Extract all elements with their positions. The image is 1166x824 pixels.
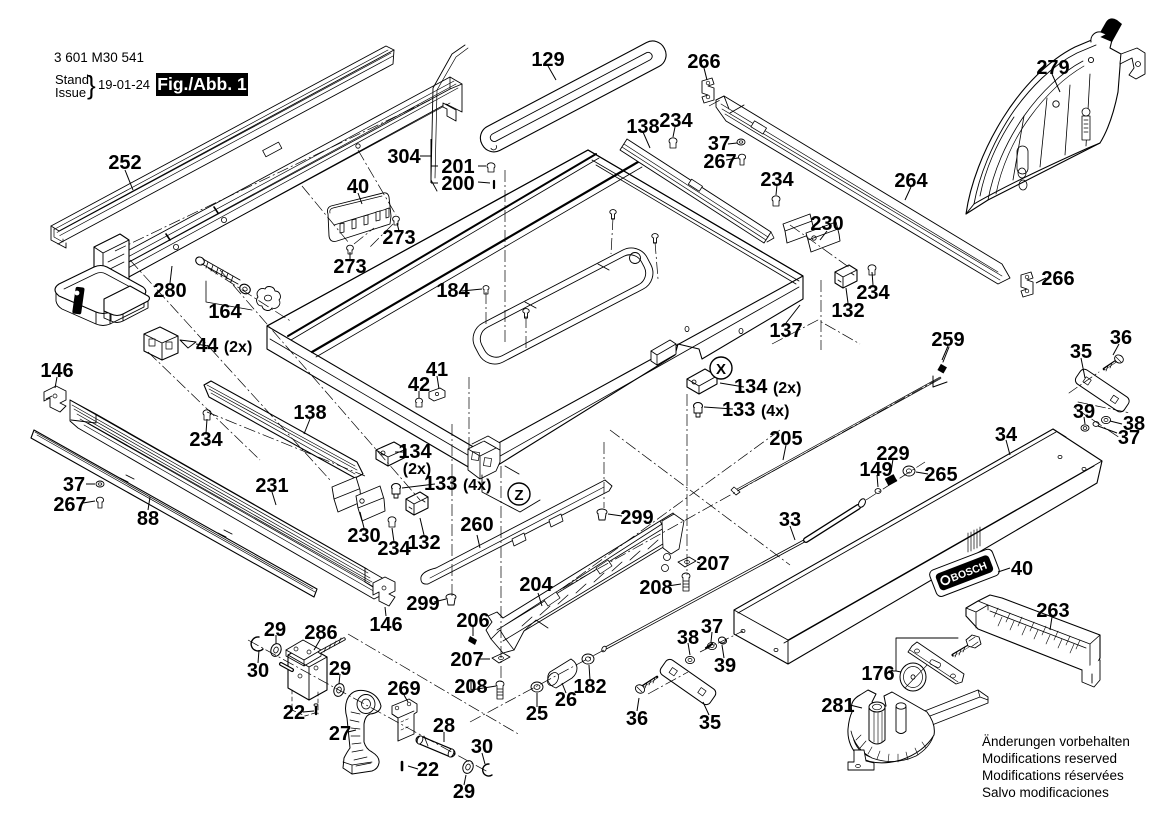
- svg-text:88: 88: [137, 508, 159, 530]
- svg-text:132: 132: [407, 532, 440, 554]
- svg-text:39: 39: [1073, 401, 1095, 423]
- svg-text:35: 35: [1070, 341, 1092, 363]
- svg-text:164: 164: [208, 301, 242, 323]
- svg-text:206: 206: [456, 610, 489, 632]
- svg-text:252: 252: [108, 152, 141, 174]
- svg-text:299: 299: [406, 593, 439, 615]
- svg-text:40: 40: [347, 176, 369, 198]
- svg-text:28: 28: [433, 715, 455, 737]
- svg-text:299: 299: [620, 507, 653, 529]
- svg-text:281: 281: [821, 695, 854, 717]
- svg-text:Modifications réservées: Modifications réservées: [982, 768, 1124, 783]
- svg-text:22: 22: [283, 702, 305, 724]
- svg-text:184: 184: [436, 280, 470, 302]
- svg-text:234: 234: [189, 429, 223, 451]
- svg-text:259: 259: [931, 329, 964, 351]
- svg-text:280: 280: [153, 280, 186, 302]
- svg-text:273: 273: [333, 256, 366, 278]
- svg-text:267: 267: [53, 494, 86, 516]
- svg-text:182: 182: [573, 676, 606, 698]
- svg-text:X: X: [716, 361, 726, 378]
- svg-text:176: 176: [861, 663, 894, 685]
- svg-text:22: 22: [417, 759, 439, 781]
- svg-text:Issue: Issue: [55, 85, 86, 100]
- svg-text:29: 29: [264, 619, 286, 641]
- svg-text:35: 35: [699, 712, 721, 734]
- svg-text:230: 230: [347, 525, 380, 547]
- svg-text:}: }: [87, 70, 96, 100]
- svg-text:36: 36: [1110, 327, 1132, 349]
- svg-text:138: 138: [626, 116, 659, 138]
- svg-text:138: 138: [293, 402, 326, 424]
- svg-text:263: 263: [1036, 600, 1069, 622]
- svg-text:29: 29: [453, 781, 475, 803]
- svg-text:Salvo modificaciones: Salvo modificaciones: [982, 785, 1109, 800]
- svg-text:269: 269: [387, 678, 420, 700]
- svg-text:265: 265: [924, 464, 957, 486]
- svg-text:27: 27: [329, 723, 351, 745]
- svg-text:19-01-24: 19-01-24: [98, 77, 150, 92]
- svg-text:Modifications reserved: Modifications reserved: [982, 751, 1117, 766]
- svg-text:133 (4x): 133 (4x): [722, 399, 789, 421]
- svg-text:29: 29: [329, 658, 351, 680]
- svg-text:36: 36: [626, 708, 648, 730]
- svg-text:44 (2x): 44 (2x): [196, 335, 252, 357]
- svg-text:33: 33: [779, 509, 801, 531]
- svg-text:146: 146: [369, 614, 402, 636]
- svg-text:230: 230: [810, 213, 843, 235]
- svg-text:134 (2x): 134 (2x): [734, 376, 801, 398]
- svg-text:40: 40: [1011, 558, 1033, 580]
- svg-text:132: 132: [831, 300, 864, 322]
- svg-text:34: 34: [995, 424, 1018, 446]
- svg-text:39: 39: [714, 655, 736, 677]
- svg-text:279: 279: [1036, 57, 1069, 79]
- svg-text:200: 200: [441, 173, 474, 195]
- svg-text:208: 208: [639, 577, 672, 599]
- svg-text:204: 204: [519, 574, 553, 596]
- svg-text:134: 134: [398, 441, 432, 463]
- svg-text:207: 207: [696, 553, 729, 575]
- svg-text:133 (4x): 133 (4x): [424, 473, 491, 495]
- svg-text:234: 234: [659, 110, 693, 132]
- svg-text:260: 260: [460, 514, 493, 536]
- svg-text:42: 42: [408, 374, 430, 396]
- svg-text:37: 37: [1118, 427, 1140, 449]
- svg-text:Fig./Abb. 1: Fig./Abb. 1: [157, 74, 247, 94]
- svg-text:304: 304: [387, 146, 421, 168]
- svg-text:207: 207: [450, 649, 483, 671]
- svg-text:137: 137: [769, 320, 802, 342]
- svg-text:146: 146: [40, 360, 73, 382]
- svg-text:25: 25: [526, 703, 548, 725]
- svg-text:205: 205: [769, 428, 802, 450]
- svg-text:266: 266: [687, 51, 720, 73]
- svg-text:149: 149: [859, 459, 892, 481]
- svg-text:129: 129: [531, 49, 564, 71]
- svg-text:267: 267: [703, 151, 736, 173]
- svg-text:231: 231: [255, 475, 288, 497]
- svg-text:234: 234: [760, 169, 794, 191]
- svg-text:30: 30: [247, 660, 269, 682]
- svg-text:3 601 M30 541: 3 601 M30 541: [54, 50, 144, 65]
- svg-text:30: 30: [471, 736, 493, 758]
- svg-text:286: 286: [304, 622, 337, 644]
- svg-text:37: 37: [63, 474, 85, 496]
- svg-text:208: 208: [454, 676, 487, 698]
- svg-text:37: 37: [701, 616, 723, 638]
- svg-text:38: 38: [677, 627, 699, 649]
- svg-text:266: 266: [1041, 268, 1074, 290]
- svg-text:264: 264: [894, 170, 928, 192]
- svg-text:Änderungen vorbehalten: Änderungen vorbehalten: [982, 734, 1130, 749]
- svg-text:273: 273: [382, 227, 415, 249]
- svg-text:Z: Z: [514, 487, 523, 504]
